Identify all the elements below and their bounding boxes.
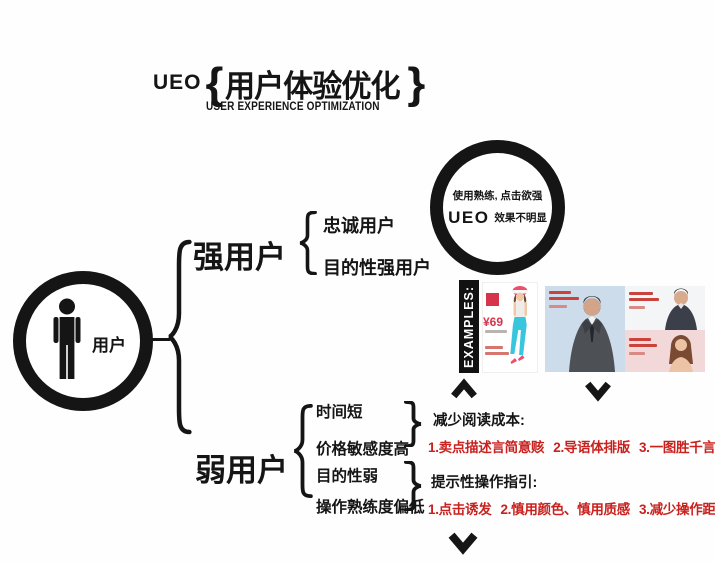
ueo-circle: 使用熟练, 点击欲强 UEO 效果不明显 bbox=[430, 140, 565, 275]
weak-user-label: 弱用户 bbox=[195, 445, 288, 490]
jacket-man-illustration bbox=[659, 288, 703, 330]
strong-item-purposeful: 目的性强用户 bbox=[323, 254, 431, 280]
examples-label-bar: EXAMPLES: bbox=[459, 280, 479, 373]
examples-label: EXAMPLES: bbox=[462, 286, 476, 368]
caption-decor bbox=[485, 346, 503, 349]
chevron-down-icon bbox=[584, 380, 612, 403]
example-product-card-2 bbox=[545, 286, 705, 372]
guidance-2-points: 1.点击诱发 2.慎用颜色、慎用质感 3.减少操作距离 bbox=[428, 498, 715, 518]
price-text: ¥69 bbox=[483, 315, 503, 329]
brace-result-2 bbox=[404, 461, 423, 511]
woman-banner-panel bbox=[625, 330, 705, 372]
page-subtitle: USER EXPERIENCE OPTIMIZATION bbox=[206, 101, 380, 113]
guidance-point: 1.卖点描述言简意赅 bbox=[428, 436, 544, 456]
strong-item-loyal: 忠诚用户 bbox=[323, 212, 395, 238]
user-label: 用户 bbox=[92, 331, 126, 356]
ueo-circle-line2: 效果不明显 bbox=[494, 210, 547, 225]
page-title: UEO { 用户体验优化 } bbox=[153, 60, 425, 106]
title-main: 用户体验优化 bbox=[225, 61, 400, 106]
weak-item-price-sensitive: 价格敏感度高 bbox=[316, 437, 409, 459]
title-close-brace: } bbox=[407, 61, 425, 105]
jacket-banner-panel bbox=[625, 286, 705, 330]
brace-weak-items bbox=[292, 404, 313, 498]
guidance-point: 3.减少操作距离 bbox=[639, 498, 715, 518]
user-icon bbox=[46, 298, 88, 384]
woman-illustration bbox=[659, 332, 701, 372]
suit-banner-panel bbox=[545, 286, 625, 372]
caption-decor bbox=[485, 330, 507, 333]
model-illustration bbox=[506, 285, 536, 370]
guidance-point: 1.点击诱发 bbox=[428, 498, 491, 518]
title-open-brace: { bbox=[206, 61, 224, 105]
guidance-1-heading: 减少阅读成本: bbox=[433, 409, 525, 430]
chevron-up-icon bbox=[450, 377, 478, 400]
chevron-down-icon bbox=[447, 531, 479, 556]
guidance-point: 3.一图胜千言 bbox=[639, 436, 715, 456]
weak-item-weak-purpose: 目的性弱 bbox=[316, 464, 378, 486]
title-prefix: UEO bbox=[153, 71, 202, 95]
guidance-2-heading: 提示性操作指引: bbox=[431, 471, 537, 492]
suit-man-illustration bbox=[559, 294, 619, 372]
strong-user-label: 强用户 bbox=[193, 232, 286, 277]
brace-result-1 bbox=[404, 401, 423, 447]
ueo-brand: UEO bbox=[448, 208, 489, 228]
ueo-infographic: UEO { 用户体验优化 } USER EXPERIENCE OPTIMIZAT… bbox=[0, 0, 715, 562]
guidance-point: 2.导语体排版 bbox=[553, 436, 630, 456]
weak-item-time: 时间短 bbox=[316, 400, 363, 422]
guidance-1-points: 1.卖点描述言简意赅 2.导语体排版 3.一图胜千言 bbox=[428, 436, 715, 456]
sale-badge bbox=[486, 293, 499, 306]
brace-user-split bbox=[166, 238, 192, 436]
brace-strong-items bbox=[298, 211, 317, 275]
guidance-point: 2.慎用颜色、慎用质感 bbox=[500, 498, 629, 518]
example-product-card-1: ¥69 bbox=[482, 282, 538, 373]
ueo-circle-line1: 使用熟练, 点击欲强 bbox=[453, 188, 543, 203]
